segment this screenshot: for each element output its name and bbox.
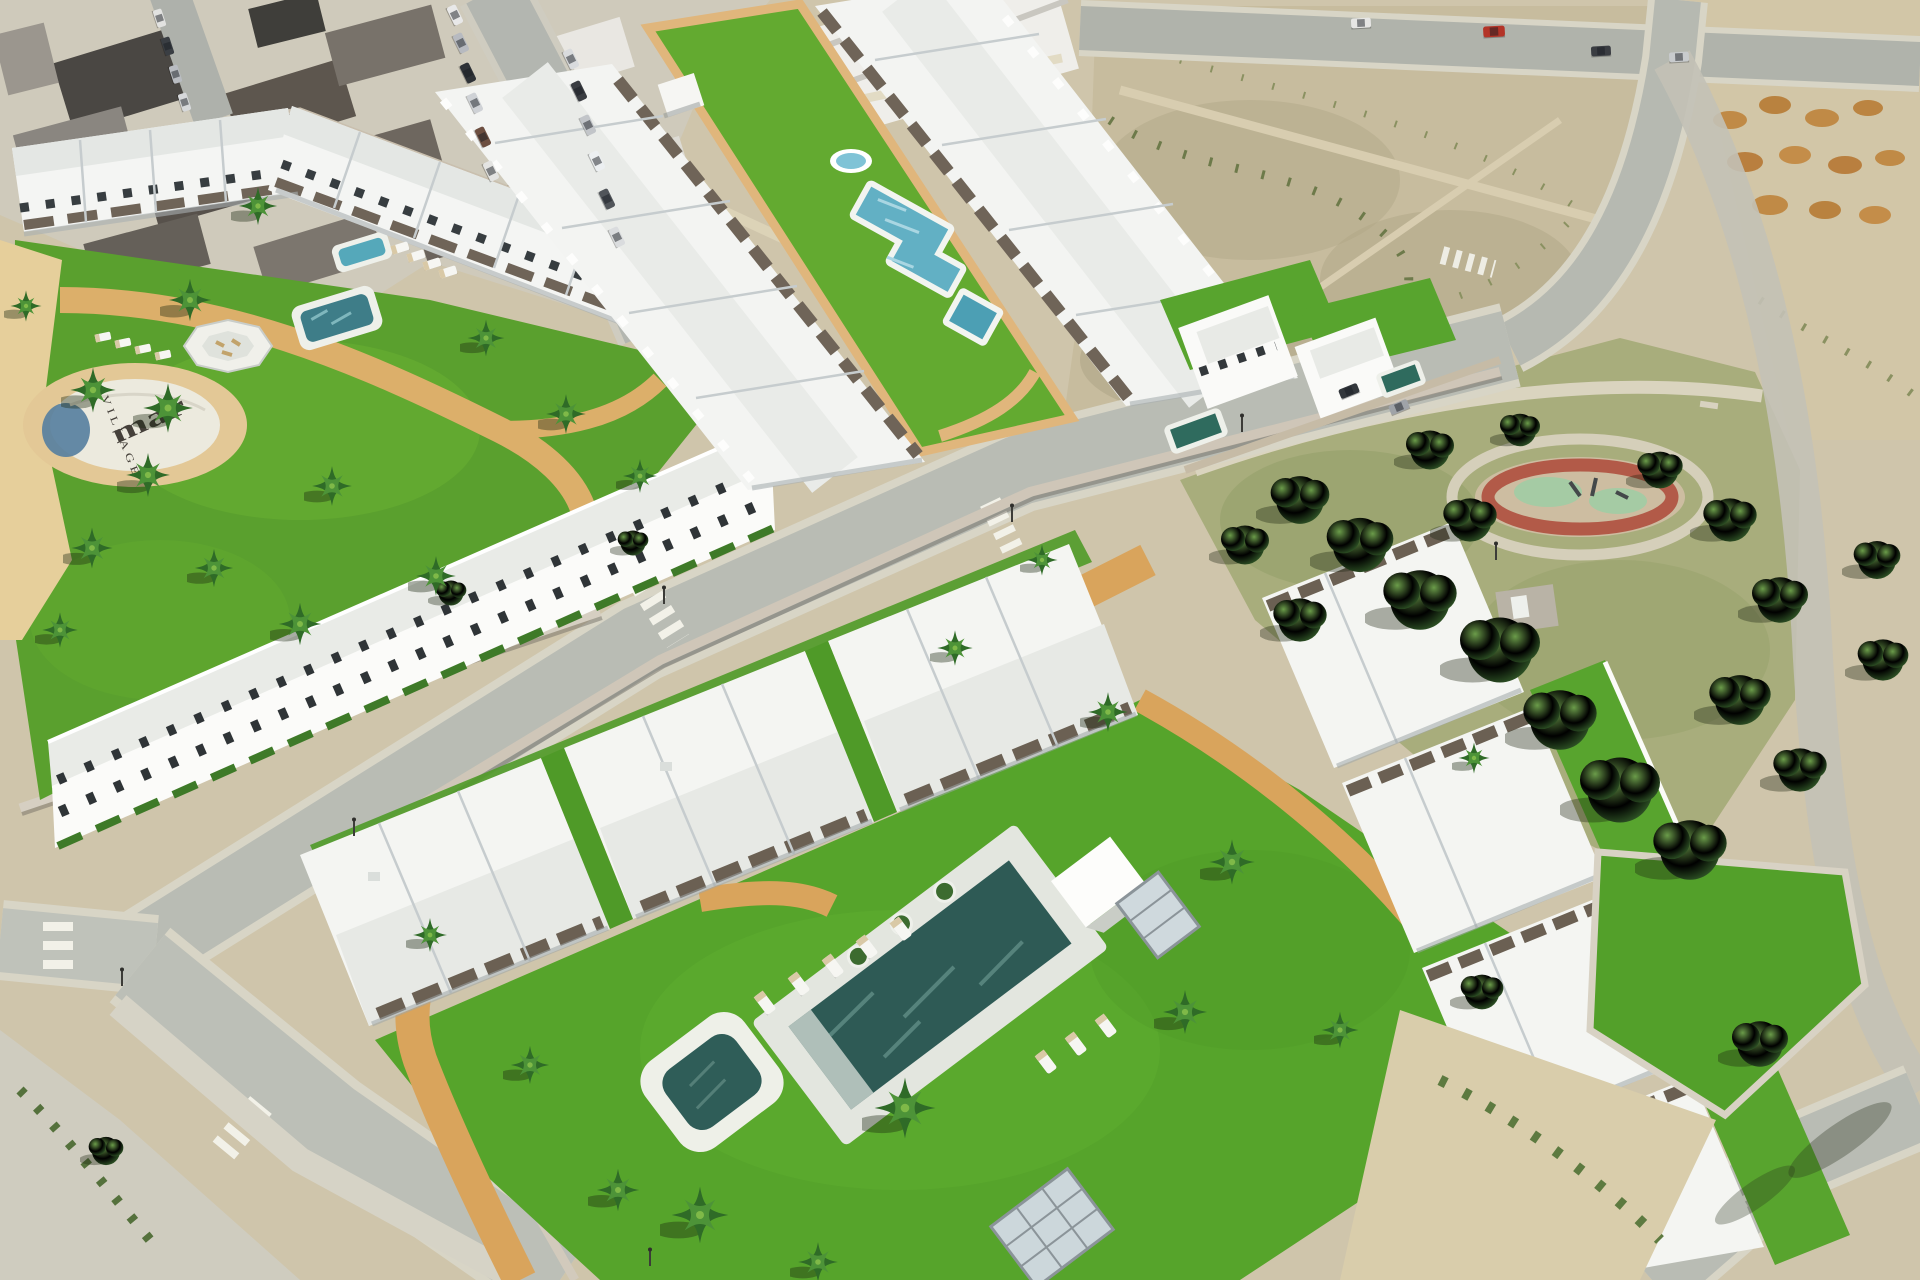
dirt-mound <box>1759 96 1791 114</box>
dirt-mound <box>1809 201 1841 219</box>
screenshot-root: marVILLAGE <box>0 0 1920 1280</box>
paver-path-pool <box>700 893 832 906</box>
block-m2-chimney <box>660 762 672 771</box>
block-m1-chimney <box>368 872 380 881</box>
dirt-mound <box>1779 146 1811 164</box>
dirt-mound <box>1828 156 1862 174</box>
dirt-mound <box>1805 109 1839 127</box>
aerial-render: marVILLAGE <box>0 0 1920 1280</box>
dirt-mound <box>1859 206 1891 224</box>
park-utility-door <box>1511 595 1530 619</box>
car <box>1591 46 1611 58</box>
plaza-water-feature <box>42 403 90 457</box>
car <box>1669 52 1689 64</box>
fountain-pool-water <box>836 153 866 169</box>
dirt-mound <box>1853 100 1883 116</box>
road-west-stub <box>0 940 155 955</box>
car-red <box>1483 26 1505 39</box>
dirt-mound <box>1875 150 1905 166</box>
car <box>1351 18 1371 30</box>
